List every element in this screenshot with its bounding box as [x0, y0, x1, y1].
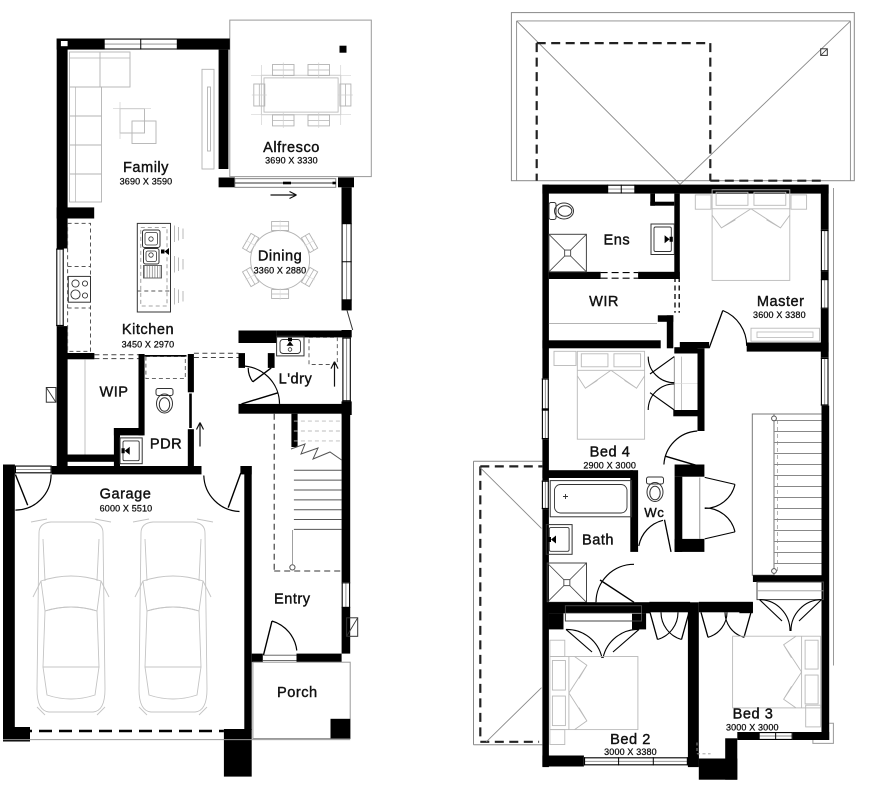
svg-text:3690 X 3590: 3690 X 3590 — [120, 177, 173, 187]
svg-text:Garage: Garage — [100, 487, 152, 503]
svg-text:Family: Family — [123, 160, 169, 176]
svg-text:L'dry: L'dry — [279, 372, 313, 388]
svg-text:Bath: Bath — [582, 533, 614, 549]
svg-text:3000 X 3380: 3000 X 3380 — [604, 747, 657, 757]
svg-text:6000 X 5510: 6000 X 5510 — [100, 504, 153, 514]
svg-text:3600 X 3380: 3600 X 3380 — [753, 310, 806, 320]
svg-text:PDR: PDR — [150, 437, 182, 453]
svg-text:Wc: Wc — [644, 505, 664, 520]
svg-text:Kitchen: Kitchen — [122, 322, 174, 338]
svg-text:2900 X 3000: 2900 X 3000 — [583, 461, 636, 471]
svg-text:3450 X 2970: 3450 X 2970 — [122, 340, 175, 350]
svg-text:3360 X 2880: 3360 X 2880 — [254, 266, 307, 276]
svg-text:3000 X 3000: 3000 X 3000 — [726, 723, 779, 733]
svg-text:Bed 2: Bed 2 — [610, 732, 651, 748]
svg-text:WIR: WIR — [589, 294, 619, 310]
svg-text:3690 X 3330: 3690 X 3330 — [265, 156, 318, 166]
svg-text:Porch: Porch — [277, 685, 318, 701]
svg-text:Bed 4: Bed 4 — [590, 445, 631, 461]
svg-text:Alfresco: Alfresco — [263, 140, 320, 156]
svg-text:Dining: Dining — [258, 249, 302, 265]
svg-text:Bed 3: Bed 3 — [733, 707, 774, 723]
svg-text:Ens: Ens — [603, 233, 630, 249]
svg-text:Entry: Entry — [274, 592, 311, 608]
svg-text:Master: Master — [757, 294, 805, 310]
svg-text:WIP: WIP — [99, 385, 128, 401]
